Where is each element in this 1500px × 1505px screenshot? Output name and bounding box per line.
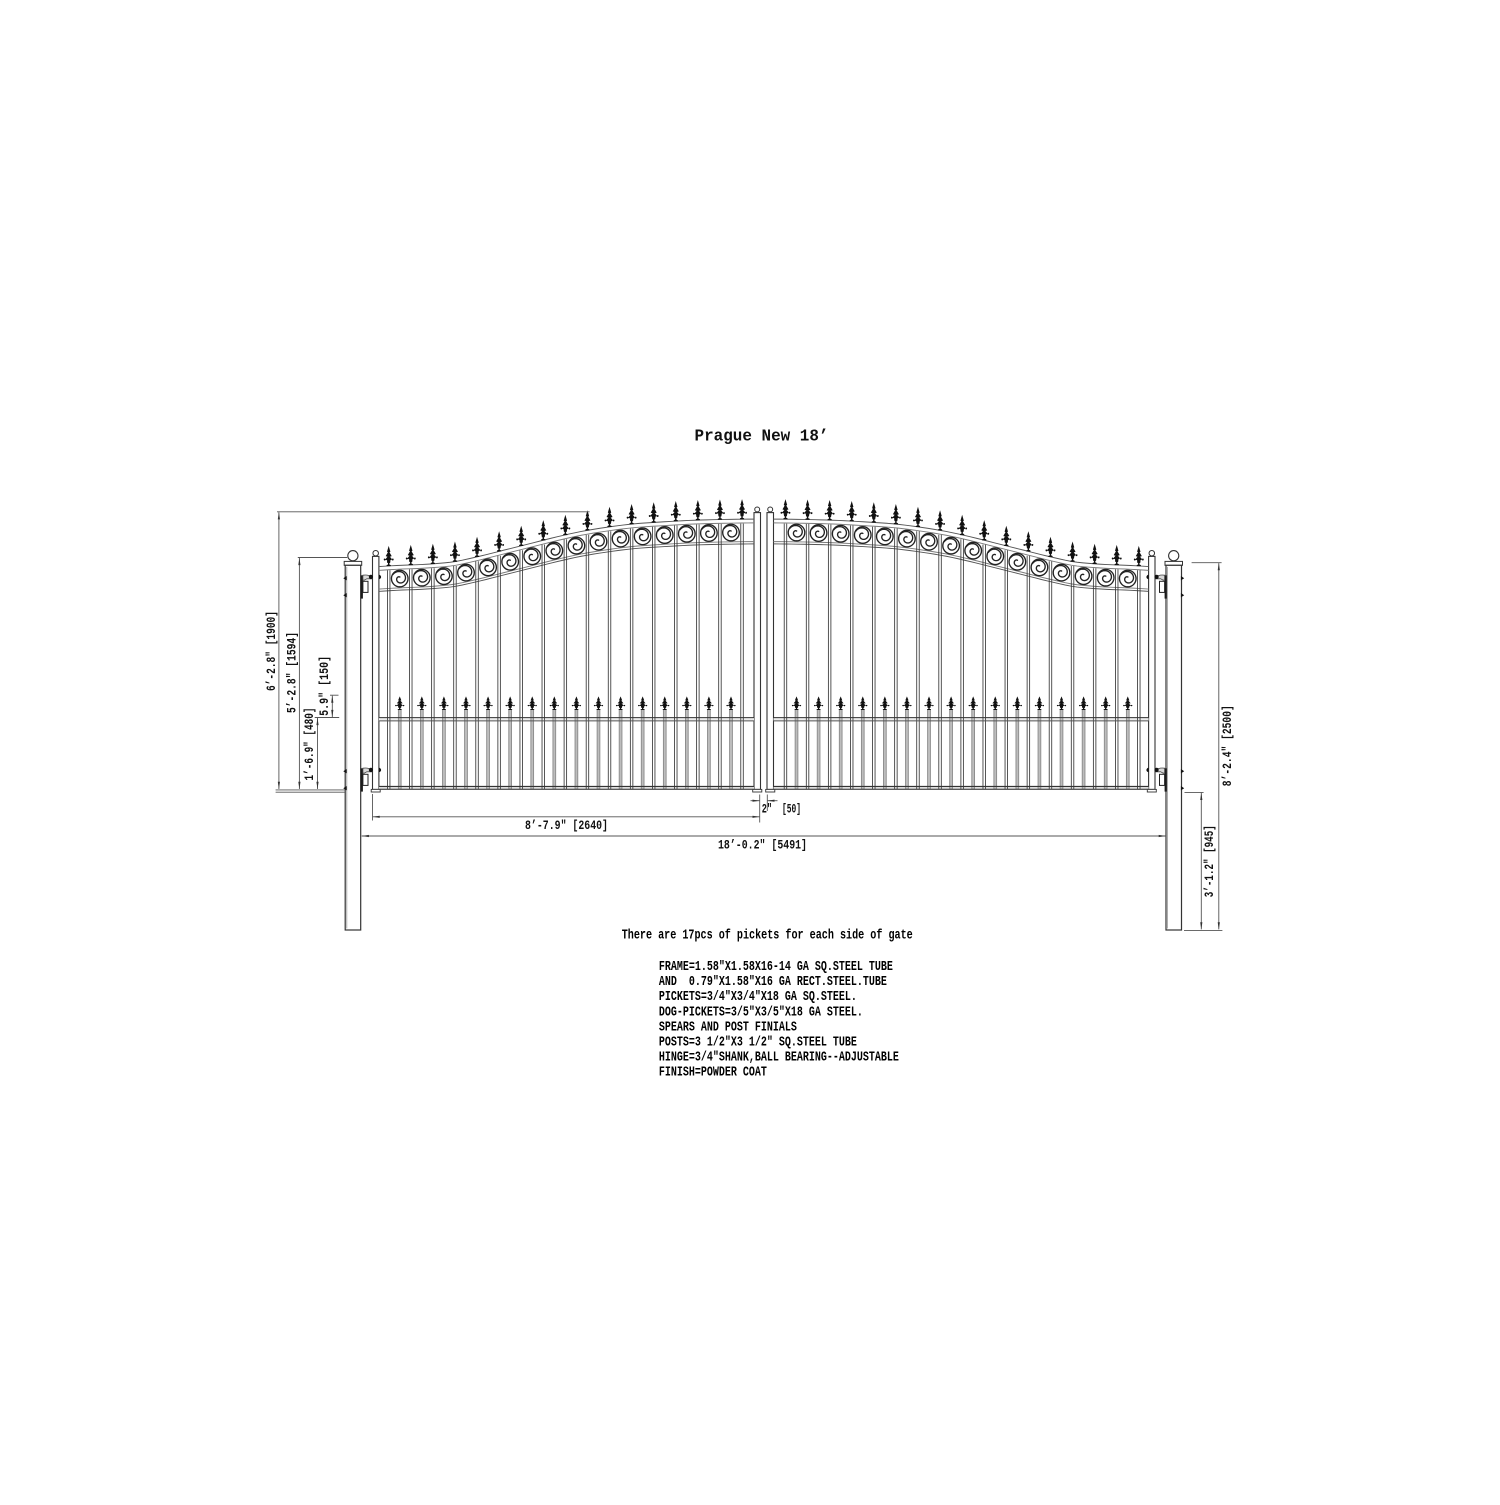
svg-text:8’-7.9" [2640]: 8’-7.9" [2640] [525, 819, 608, 833]
svg-text:FRAME=1.58"X1.58X16-14 GA SQ.S: FRAME=1.58"X1.58X16-14 GA SQ.STEEL TUBE [659, 959, 893, 975]
svg-text:6’-2.8" [1900]: 6’-2.8" [1900] [265, 611, 279, 691]
svg-text:There are 17pcs of pickets for: There are 17pcs of pickets for each side… [622, 928, 913, 944]
svg-text:2": 2" [762, 803, 772, 817]
svg-text:5’-2.8" [1594]: 5’-2.8" [1594] [286, 632, 300, 713]
svg-text:3’-1.2" [945]: 3’-1.2" [945] [1203, 825, 1217, 897]
svg-text:[50]: [50] [782, 803, 801, 817]
svg-text:HINGE=3/4"SHANK,BALL BEARING--: HINGE=3/4"SHANK,BALL BEARING--ADJUSTABLE [659, 1050, 899, 1066]
svg-text:SPEARS AND POST FINIALS: SPEARS AND POST FINIALS [659, 1019, 797, 1035]
svg-text:PICKETS=3/4"X3/4"X18 GA SQ.STE: PICKETS=3/4"X3/4"X18 GA SQ.STEEL. [659, 989, 857, 1005]
svg-text:5.9" [150]: 5.9" [150] [318, 656, 332, 716]
svg-text:Prague New 18’: Prague New 18’ [695, 428, 829, 447]
svg-text:AND 0.79"X1.58"X16 GA RECT.ST: AND 0.79"X1.58"X16 GA RECT.STEEL.TUBE [659, 974, 887, 990]
svg-text:DOG-PICKETS=3/5"X3/5"X18 GA ST: DOG-PICKETS=3/5"X3/5"X18 GA STEEL. [659, 1004, 863, 1020]
svg-text:POSTS=3 1/2"X3 1/2" SQ.STEEL T: POSTS=3 1/2"X3 1/2" SQ.STEEL TUBE [659, 1035, 857, 1051]
svg-text:FINISH=POWDER COAT: FINISH=POWDER COAT [659, 1065, 767, 1081]
svg-text:18’-0.2" [5491]: 18’-0.2" [5491] [718, 838, 807, 852]
svg-text:1’-6.9" [480]: 1’-6.9" [480] [303, 708, 317, 781]
svg-text:8’-2.4" [2500]: 8’-2.4" [2500] [1221, 705, 1235, 786]
